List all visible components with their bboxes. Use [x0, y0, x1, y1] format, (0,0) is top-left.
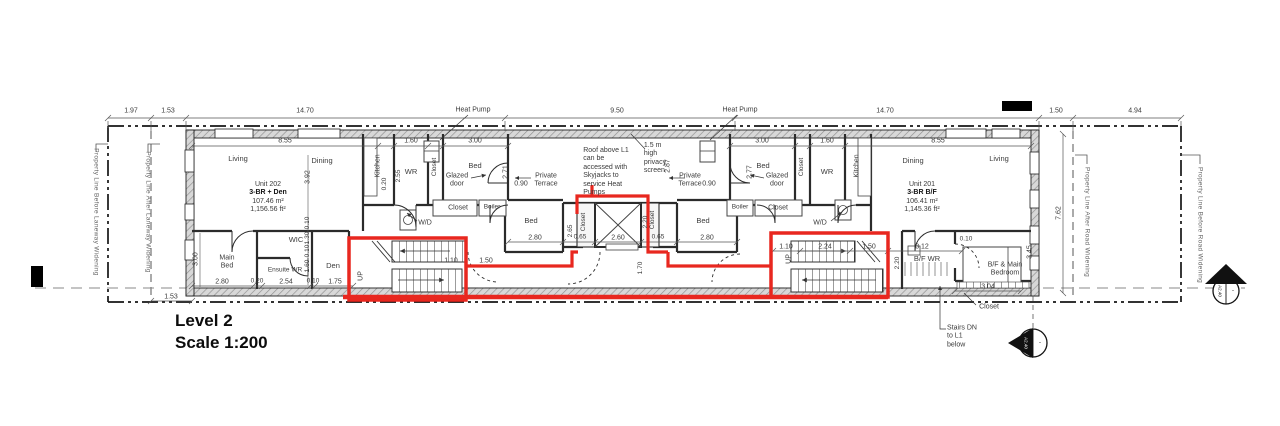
dim-top-3: 14.70	[296, 107, 314, 114]
dim-rs-224: 2.24	[818, 243, 832, 250]
room-closet-right-strip: Closet	[799, 158, 806, 176]
room-dining-left: Dining	[311, 157, 332, 165]
section-marker-bottom-label: A2.40	[1024, 337, 1029, 349]
dim-b4: 0.10	[307, 279, 320, 286]
room-kitchen-right: Kitchen	[854, 154, 861, 177]
dim-v010a: 0.10	[305, 217, 312, 230]
closet-callout: Closet	[979, 303, 999, 310]
dim-stair-d: 2.20	[895, 257, 902, 270]
private-terrace-label-left: PrivateTerrace	[534, 173, 557, 190]
stairs-dn-note: Stairs DNto L1 below	[947, 324, 977, 349]
roof-access-note: Roof above L1can be accessed withSkyjack…	[583, 147, 629, 197]
room-ensuite-wr: Ensuite WR	[268, 268, 302, 275]
up-label-right: UP	[786, 254, 793, 264]
dim-row2-r3: 8.55	[931, 137, 945, 144]
privacy-screen-note: 1.5 mhigh privacyscreen	[644, 142, 666, 176]
drawing-title: Level 2 Scale 1:200	[175, 310, 268, 354]
private-terrace-label-right: PrivateTerrace	[678, 173, 701, 190]
room-wr-right: WR	[821, 168, 834, 176]
dim-rs-110: 1.10	[779, 243, 793, 250]
dim-row2-l1: 8.55	[278, 137, 292, 144]
dim-bed-l: 2.80	[528, 234, 542, 241]
heat-pump-label-right: Heat Pump	[722, 106, 757, 113]
unit-left-area-ft2: 1,156.56 ft²	[250, 206, 285, 213]
dim-lift-d: 2.20	[643, 216, 650, 229]
room-bf-wr: B/F WR	[914, 255, 940, 263]
room-bed-right: Bed	[756, 162, 769, 170]
dim-screen-287: 2.87	[665, 159, 672, 173]
closet-shaft-right: Closet	[650, 211, 657, 229]
room-main-bed: MainBed	[219, 255, 234, 272]
unit-right-type: 3-BR B/F	[907, 190, 937, 197]
dim-bed-r: 2.80	[700, 234, 714, 241]
dim-glazed-right: 0.90	[702, 180, 716, 187]
boiler-label-left: Boiler	[484, 205, 501, 212]
boiler-label-right: Boiler	[732, 205, 749, 212]
dim-bed-depth-right: 2.77	[747, 165, 754, 179]
room-kitchen-left: Kitchen	[375, 154, 382, 177]
dim-core-s2: 0.65	[652, 235, 665, 242]
scale-label: Scale 1:200	[175, 332, 268, 354]
dim-living-depth: 3.92	[305, 170, 312, 184]
section-marker-right-label: A2.40	[1218, 285, 1223, 297]
room-dining-right: Dining	[902, 157, 923, 165]
dim-c110: 1.10	[444, 257, 458, 264]
unit-right-area-m2: 106.41 m²	[906, 198, 938, 205]
room-living-right: Living	[989, 155, 1009, 163]
dim-g010: 0.10	[960, 237, 973, 244]
dim-bed-depth-left: 2.71	[503, 165, 510, 179]
room-bf-main-bedroom: B/F & MainBedroom	[988, 262, 1023, 279]
dim-top-7: 4.94	[1128, 107, 1142, 114]
property-line-before-road: Property Line Before Road Widening	[1197, 167, 1204, 283]
dim-row2-r2: 1.60	[820, 137, 834, 144]
dim-bed-d: 3.45	[1027, 245, 1034, 259]
room-wr-left: WR	[405, 168, 418, 176]
wd-label-left: W/D	[418, 219, 432, 226]
dim-wr-w: 3.12	[915, 243, 929, 250]
dim-top-4: 9.50	[610, 107, 624, 114]
room-den: Den	[326, 262, 340, 270]
room-bed-left: Bed	[468, 162, 481, 170]
glazed-door-label-right: Glazeddoor	[766, 173, 788, 190]
dim-v010b: 0.10	[305, 245, 312, 258]
match-bar-top	[1002, 101, 1032, 111]
dim-top-2: 1.53	[161, 107, 175, 114]
section-marker-right-blank: -	[1232, 288, 1234, 294]
dim-top-6: 1.50	[1049, 107, 1063, 114]
unit-left-type: 3-BR + Den	[249, 190, 287, 197]
closet-label-left: Closet	[448, 204, 468, 211]
dim-bed-w: 3.04	[981, 283, 995, 290]
closet-shaft-left: Closet	[581, 213, 588, 231]
property-line-after-road: Property Line After Road Widening	[1084, 167, 1091, 277]
dim-glazed-left: 0.90	[514, 180, 528, 187]
property-line-after-laneway: Property Line After Laneway Widening	[145, 151, 152, 272]
dim-b2: 0.20	[251, 279, 264, 286]
dim-core-s1: 0.65	[574, 235, 587, 242]
closet-label-right: Closet	[768, 204, 788, 211]
up-label-left: UP	[358, 271, 365, 281]
dim-site-right: 7.62	[1056, 206, 1063, 220]
section-marker-right	[1205, 264, 1247, 304]
room-wic: WIC	[289, 236, 304, 244]
room-closet-left-strip: Closet	[432, 158, 439, 176]
unit-right-info: Unit 201 3-BR B/F 106.41 m² 1,145.36 ft²	[904, 181, 939, 215]
unit-right-area-ft2: 1,145.36 ft²	[904, 206, 939, 213]
dim-lobby: 1.70	[638, 262, 645, 275]
dim-b3: 2.54	[279, 278, 293, 285]
section-marker-bottom-blank: -	[1039, 340, 1041, 346]
unit-left-info: Unit 202 3-BR + Den 107.46 m² 1,156.56 f…	[249, 181, 287, 215]
dim-top-1: 1.97	[124, 107, 138, 114]
dim-b1: 2.80	[215, 278, 229, 285]
unit-left-area-m2: 107.46 m²	[252, 198, 284, 205]
dim-top-5: 14.70	[876, 107, 894, 114]
dim-row2-r1: 3.00	[755, 137, 769, 144]
dim-row2-l2: 1.60	[404, 137, 418, 144]
dim-lane-153: 1.53	[164, 293, 178, 300]
dim-k020: 0.20	[382, 178, 389, 191]
level-label: Level 2	[175, 310, 268, 332]
room-bed-center-right: Bed	[696, 217, 709, 225]
dim-lift-w: 2.60	[611, 234, 625, 241]
match-bar-left	[31, 266, 43, 287]
room-bed-center-left: Bed	[524, 217, 537, 225]
dim-v160: 1.60	[305, 260, 312, 273]
property-line-before-laneway: Property Line Before Laneway Widening	[93, 148, 100, 275]
wd-label-right: W/D	[813, 219, 827, 226]
dim-v130: 1.30	[305, 232, 312, 245]
unit-left-name: Unit 202	[255, 181, 281, 188]
room-living-left: Living	[228, 155, 248, 163]
glazed-door-label-left: Glazeddoor	[446, 173, 468, 190]
dim-rs-150: 1.50	[862, 243, 876, 250]
dim-main-bed-h: 3.00	[193, 252, 200, 266]
unit-right-name: Unit 201	[909, 181, 935, 188]
dim-b5: 1.75	[328, 278, 342, 285]
dim-row2-l3: 3.00	[468, 137, 482, 144]
dim-wr-depth: 2.55	[396, 170, 403, 183]
heat-pump-label-left: Heat Pump	[455, 106, 490, 113]
stair-left	[372, 241, 466, 292]
floor-plan-sheet: 1.97 1.53 14.70 Heat Pump 9.50 Heat Pump…	[0, 0, 1280, 426]
dim-c150: 1.50	[479, 257, 493, 264]
